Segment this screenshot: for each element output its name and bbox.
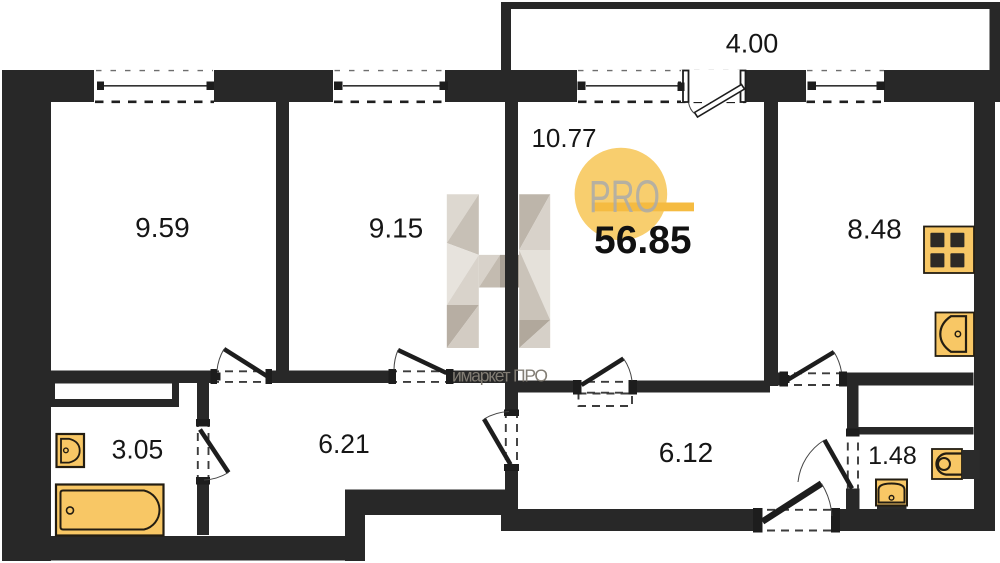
svg-text:4.00: 4.00 [726,28,779,58]
svg-text:3.05: 3.05 [112,435,164,465]
svg-text:6.12: 6.12 [659,437,714,468]
svg-text:9.15: 9.15 [369,213,424,244]
svg-text:56.85: 56.85 [594,219,692,262]
svg-text:PRO: PRO [589,171,660,222]
svg-text:8.48: 8.48 [847,213,902,244]
svg-text:1.48: 1.48 [868,442,917,470]
svg-text:имаркет ПРО: имаркет ПРО [452,366,548,386]
svg-text:10.77: 10.77 [531,123,596,153]
svg-text:9.59: 9.59 [135,212,190,243]
svg-text:6.21: 6.21 [318,429,370,459]
